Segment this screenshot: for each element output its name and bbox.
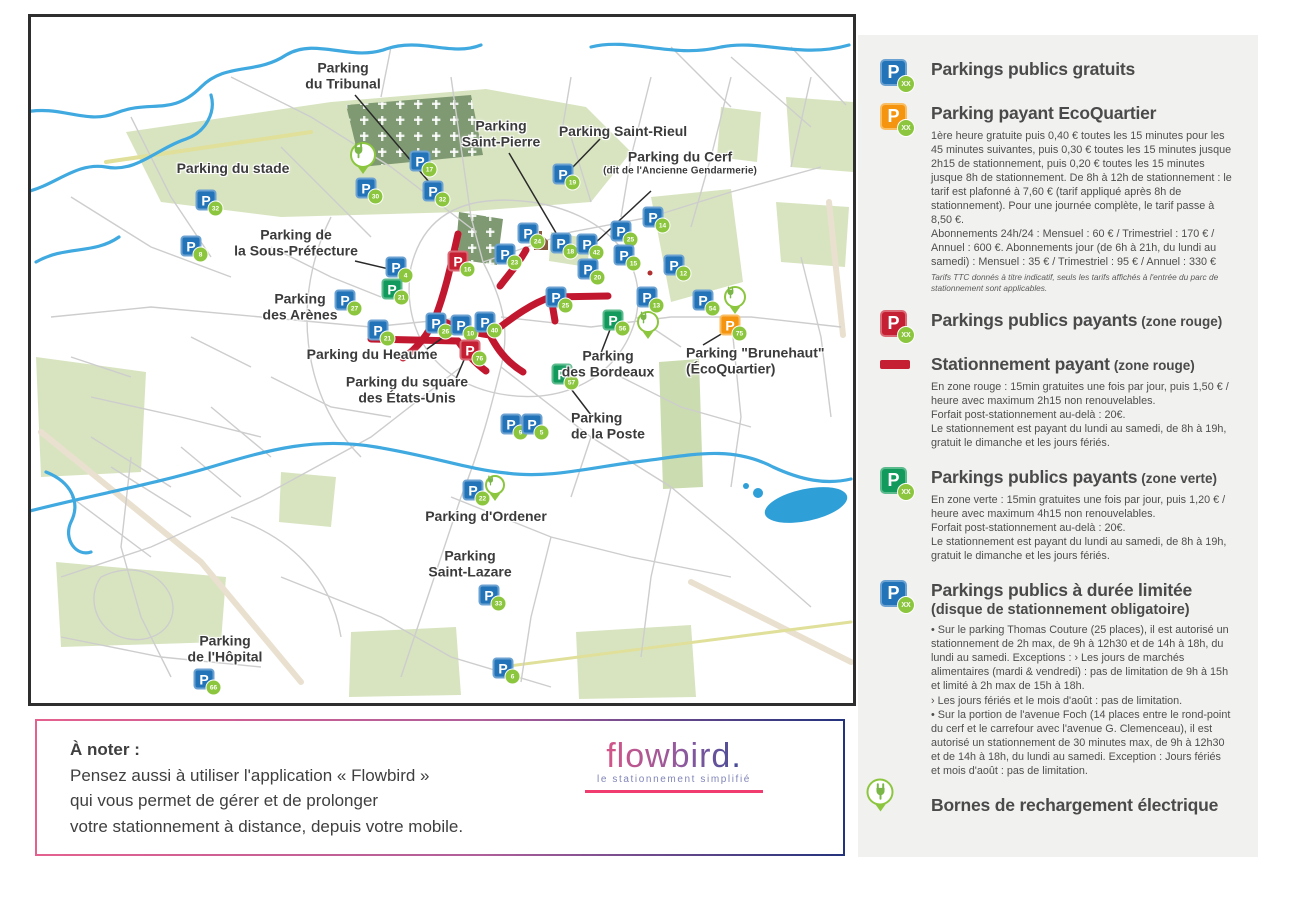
blue-parking-marker: P32	[196, 190, 217, 211]
blue-parking-marker: P32	[423, 181, 444, 202]
map-label-brunehaut: Parking "Brunehaut"(ÉcoQuartier)	[686, 345, 825, 376]
legend-item-paid-green: PxxParkings publics payants(zone verte)E…	[880, 467, 1232, 563]
capacity-badge: 54	[705, 301, 721, 317]
charging-station-icon	[724, 286, 746, 314]
legend-fine-print: Tarifs TTC donnés à titre indicatif, seu…	[931, 272, 1232, 293]
map-label-line: Parking d'Ordener	[425, 509, 547, 525]
capacity-badge: 8	[193, 247, 209, 263]
blue-parking-marker: P6	[493, 658, 514, 679]
map-label-line: Parking	[462, 118, 541, 134]
legend-panel: PxxParkings publics gratuitsPxxParking p…	[858, 35, 1258, 857]
red-parking-marker: P16	[448, 251, 469, 272]
p-blue-parking-icon: Pxx	[880, 580, 907, 607]
legend-item-ecoquartier: PxxParking payant EcoQuartier1ère heure …	[880, 103, 1232, 293]
charging-station-icon	[867, 778, 894, 811]
legend-item-body: • Sur le parking Thomas Couture (25 plac…	[931, 623, 1232, 777]
p-green-parking-icon: Pxx	[880, 467, 907, 494]
map-label-line: Parking	[188, 633, 263, 649]
blue-parking-marker: P18	[551, 233, 572, 254]
legend-item-title: Parking payant EcoQuartier	[931, 103, 1232, 124]
capacity-badge: 32	[435, 192, 451, 208]
capacity-badge: 21	[380, 331, 396, 347]
legend-item-body: En zone verte : 15min gratuites une fois…	[931, 493, 1232, 563]
legend-item-free: PxxParkings publics gratuits	[880, 59, 1232, 86]
map-label-line: de la Poste	[571, 426, 645, 442]
blue-parking-marker: P15	[614, 245, 635, 266]
legend-text-col: Stationnement payant(zone rouge)En zone …	[931, 354, 1232, 450]
capacity-badge: 5	[534, 425, 550, 441]
map-label-line: Parking Saint-Rieul	[559, 124, 687, 140]
blue-parking-marker: P9	[501, 414, 522, 435]
pond	[743, 481, 850, 530]
legend-title-text: Parkings publics à durée limitée	[931, 580, 1192, 600]
charging-pin-tail	[643, 332, 653, 339]
capacity-badge: 20	[590, 270, 606, 286]
blue-parking-marker: P24	[518, 223, 539, 244]
legend-title-text: Parkings publics gratuits	[931, 59, 1135, 79]
map-label-hopital: Parkingde l'Hôpital	[188, 633, 263, 664]
blue-parking-marker: P40	[475, 312, 496, 333]
map-label-line: Parking	[305, 60, 380, 76]
legend-text-col: Parkings publics gratuits	[931, 59, 1232, 86]
blue-parking-marker: P5	[522, 414, 543, 435]
note-title: À noter :	[70, 737, 463, 763]
map-label-heaume: Parking du Heaume	[307, 347, 438, 363]
legend-item-limited: PxxParkings publics à durée limitée(disq…	[880, 580, 1232, 777]
capacity-badge: 16	[460, 262, 476, 278]
legend-title-text: Stationnement payant	[931, 354, 1110, 374]
map-label-line: de l'Hôpital	[188, 649, 263, 665]
capacity-badge: 12	[676, 266, 692, 282]
map-label-line: Saint-Lazare	[428, 564, 511, 580]
legend-text-col: Bornes de rechargement électrique	[931, 795, 1232, 816]
legend-text-col: Parkings publics à durée limitée(disque …	[931, 580, 1232, 777]
charging-pin-tail	[875, 804, 885, 811]
blue-parking-marker: P13	[637, 287, 658, 308]
plug-icon	[350, 142, 376, 168]
parking-map-poster: Parkingdu TribunalParking du stadeParkin…	[0, 0, 1300, 900]
blue-parking-marker: P27	[335, 290, 356, 311]
blue-parking-marker: P23	[495, 244, 516, 265]
legend-title-text: Parkings publics payants	[931, 467, 1137, 487]
capacity-badge: 22	[475, 491, 491, 507]
capacity-badge: 21	[394, 290, 410, 306]
capacity-badge: 19	[565, 175, 581, 191]
charging-pin-tail	[490, 494, 500, 501]
blue-parking-marker: P10	[451, 315, 472, 336]
green-parking-marker: P21	[382, 279, 403, 300]
p-red-parking-icon: Pxx	[880, 310, 907, 337]
capacity-badge: 56	[615, 321, 631, 337]
map-label-line: Saint-Pierre	[462, 134, 541, 150]
legend-icon-col: Pxx	[880, 467, 916, 563]
legend-item-subtitle: (disque de stationnement obligatoire)	[931, 602, 1232, 618]
capacity-badge: xx	[897, 326, 915, 344]
capacity-badge: 75	[732, 326, 748, 342]
map-label-saint-rieul: Parking Saint-Rieul	[559, 124, 687, 140]
legend-icon-col	[880, 354, 916, 450]
p-orange-parking-icon: Pxx	[880, 103, 907, 130]
orange-parking-marker: P75	[720, 315, 741, 336]
map-label-line: Parking du Heaume	[307, 347, 438, 363]
note-line: qui vous permet de gérer et de prolonger	[70, 788, 463, 814]
legend-body-line: Forfait post-stationnement au-delà : 20€…	[931, 521, 1232, 535]
map-label-line: Parking de	[234, 227, 358, 243]
red-parking-marker: P76	[460, 340, 481, 361]
legend-icon-col: Pxx	[880, 103, 916, 293]
capacity-badge: 14	[655, 218, 671, 234]
map-label-line: la Sous-Préfecture	[234, 243, 358, 259]
map-label-line: des Arènes	[263, 307, 338, 323]
city-map: Parkingdu TribunalParking du stadeParkin…	[28, 14, 856, 706]
legend-text-col: Parkings publics payants(zone verte)En z…	[931, 467, 1232, 563]
blue-parking-marker: P25	[546, 287, 567, 308]
legend-body-line: 1ère heure gratuite puis 0,40 € toutes l…	[931, 129, 1232, 227]
map-label-line: Parking	[571, 410, 645, 426]
legend-item-body: 1ère heure gratuite puis 0,40 € toutes l…	[931, 129, 1232, 269]
flowbird-wordmark: flowbird.	[585, 737, 763, 776]
note-line: Pensez aussi à utiliser l'application « …	[70, 763, 463, 789]
legend-body-line: • Sur la portion de l'avenue Foch (14 pl…	[931, 708, 1232, 778]
note-line: votre stationnement à distance, depuis v…	[70, 814, 463, 840]
map-label-line: (ÉcoQuartier)	[686, 361, 825, 377]
map-label-ordener: Parking d'Ordener	[425, 509, 547, 525]
legend-title-text: Bornes de rechargement électrique	[931, 795, 1218, 815]
legend-text-col: Parking payant EcoQuartier1ère heure gra…	[931, 103, 1232, 293]
capacity-badge: xx	[897, 119, 915, 137]
capacity-badge: xx	[897, 75, 915, 93]
capacity-badge: 76	[472, 351, 488, 367]
charging-station-icon	[350, 142, 376, 174]
legend-body-line: En zone verte : 15min gratuites une fois…	[931, 493, 1232, 521]
legend-item-title: Bornes de rechargement électrique	[931, 795, 1232, 816]
charging-station-icon	[637, 311, 659, 339]
capacity-badge: 33	[491, 596, 507, 612]
blue-parking-marker: P17	[410, 151, 431, 172]
legend-title-suffix: (zone verte)	[1141, 471, 1217, 486]
charging-pin-tail	[730, 307, 740, 314]
legend-body-line: Le stationnement est payant du lundi au …	[931, 535, 1232, 563]
map-label-line: Parking du stade	[177, 161, 290, 177]
blue-parking-marker: P25	[611, 221, 632, 242]
blue-parking-marker: P12	[664, 255, 685, 276]
map-label-stade: Parking du stade	[177, 161, 290, 177]
zone-rouge-line-icon	[880, 360, 910, 369]
legend-text-col: Parkings publics payants(zone rouge)	[931, 310, 1232, 337]
legend-icon-col: Pxx	[880, 310, 916, 337]
legend-icon-col: Pxx	[880, 580, 916, 777]
legend-title-suffix: (zone rouge)	[1114, 358, 1195, 373]
blue-parking-marker: P30	[356, 178, 377, 199]
flowbird-underline	[585, 790, 763, 793]
capacity-badge: 27	[347, 301, 363, 317]
map-label-line: Parking	[562, 348, 655, 364]
legend-item-title: Parkings publics payants(zone verte)	[931, 467, 1232, 488]
legend-item-title: Parkings publics à durée limitée	[931, 580, 1232, 601]
map-label-line: Parking "Brunehaut"	[686, 345, 825, 361]
charging-pin-tail	[358, 167, 368, 174]
green-parking-marker: P56	[603, 310, 624, 331]
blue-parking-marker: P8	[181, 236, 202, 257]
capacity-badge: 25	[558, 298, 574, 314]
capacity-badge: 66	[206, 680, 222, 696]
legend-body-line: Forfait post-stationnement au-delà : 20€…	[931, 408, 1232, 422]
capacity-badge: 17	[422, 162, 438, 178]
legend-item-charging: Bornes de rechargement électrique	[880, 795, 1232, 816]
map-label-line: Parking du square	[346, 374, 468, 390]
capacity-badge: xx	[897, 596, 915, 614]
map-label-line: du Tribunal	[305, 76, 380, 92]
capacity-badge: 30	[368, 189, 384, 205]
flowbird-tagline: le stationnement simplifié	[585, 774, 763, 785]
legend-body-line: En zone rouge : 15min gratuites une fois…	[931, 380, 1232, 408]
map-label-poste: Parkingde la Poste	[571, 410, 645, 441]
blue-parking-marker: P20	[578, 259, 599, 280]
note-box: À noter : Pensez aussi à utiliser l'appl…	[35, 719, 845, 856]
map-label-saint-lazare: ParkingSaint-Lazare	[428, 548, 511, 579]
map-label-line: Parking	[263, 291, 338, 307]
map-label-subline: (dit de l'Ancienne Gendarmerie)	[603, 165, 757, 176]
legend-icon-col: Pxx	[880, 59, 916, 86]
capacity-badge: 24	[530, 234, 546, 250]
blue-parking-marker: P54	[693, 290, 714, 311]
map-label-cerf: Parking du Cerf(dit de l'Ancienne Gendar…	[603, 150, 757, 177]
capacity-badge: 40	[487, 323, 503, 339]
plug-icon	[724, 286, 746, 308]
capacity-badge: 32	[208, 201, 224, 217]
legend-title-suffix: (zone rouge)	[1141, 314, 1222, 329]
capacity-badge: xx	[897, 483, 915, 501]
map-label-saint-pierre: ParkingSaint-Pierre	[462, 118, 541, 149]
map-label-line: des Bordeaux	[562, 364, 655, 380]
capacity-badge: 13	[649, 298, 665, 314]
blue-parking-marker: P66	[194, 669, 215, 690]
blue-parking-marker: P26	[426, 313, 447, 334]
note-text: À noter : Pensez aussi à utiliser l'appl…	[70, 737, 463, 839]
flowbird-logo: flowbird. le stationnement simplifié	[585, 737, 763, 793]
legend-body-line: › Les jours fériés et le mois d'août : p…	[931, 694, 1232, 708]
plug-icon	[637, 311, 659, 333]
legend-item-street-red: Stationnement payant(zone rouge)En zone …	[880, 354, 1232, 450]
legend-item-title: Stationnement payant(zone rouge)	[931, 354, 1232, 375]
capacity-badge: 15	[626, 256, 642, 272]
legend-title-text: Parking payant EcoQuartier	[931, 103, 1156, 123]
blue-parking-marker: P33	[479, 585, 500, 606]
plug-icon	[867, 778, 894, 805]
legend-body-line: Abonnements 24h/24 : Mensuel : 60 € / Tr…	[931, 227, 1232, 269]
legend-icon-col	[880, 795, 916, 816]
blue-parking-marker: P4	[386, 257, 407, 278]
map-label-bordeaux: Parkingdes Bordeaux	[562, 348, 655, 379]
map-label-line: Parking	[428, 548, 511, 564]
blue-parking-marker: P14	[643, 207, 664, 228]
legend-title-text: Parkings publics payants	[931, 310, 1137, 330]
legend-item-title: Parkings publics payants(zone rouge)	[931, 310, 1232, 331]
blue-parking-marker: P22	[463, 480, 484, 501]
blue-parking-marker: P19	[553, 164, 574, 185]
legend-item-body: En zone rouge : 15min gratuites une fois…	[931, 380, 1232, 450]
p-blue-parking-icon: Pxx	[880, 59, 907, 86]
map-label-arenes: Parkingdes Arènes	[263, 291, 338, 322]
map-label-line: des États-Unis	[346, 390, 468, 406]
capacity-badge: 23	[507, 255, 523, 271]
map-label-etats-unis: Parking du squaredes États-Unis	[346, 374, 468, 405]
legend-body-line: Le stationnement est payant du lundi au …	[931, 422, 1232, 450]
map-label-line: Parking du Cerf	[603, 150, 757, 166]
blue-parking-marker: P42	[577, 234, 598, 255]
capacity-badge: 6	[505, 669, 521, 685]
legend-item-title: Parkings publics gratuits	[931, 59, 1232, 80]
legend-body-line: • Sur le parking Thomas Couture (25 plac…	[931, 623, 1232, 693]
legend-item-paid-red: PxxParkings publics payants(zone rouge)	[880, 310, 1232, 337]
blue-parking-marker: P21	[368, 320, 389, 341]
map-label-tribunal: Parkingdu Tribunal	[305, 60, 380, 91]
map-label-sous-prefecture: Parking dela Sous-Préfecture	[234, 227, 358, 258]
monument-icon	[648, 271, 653, 276]
